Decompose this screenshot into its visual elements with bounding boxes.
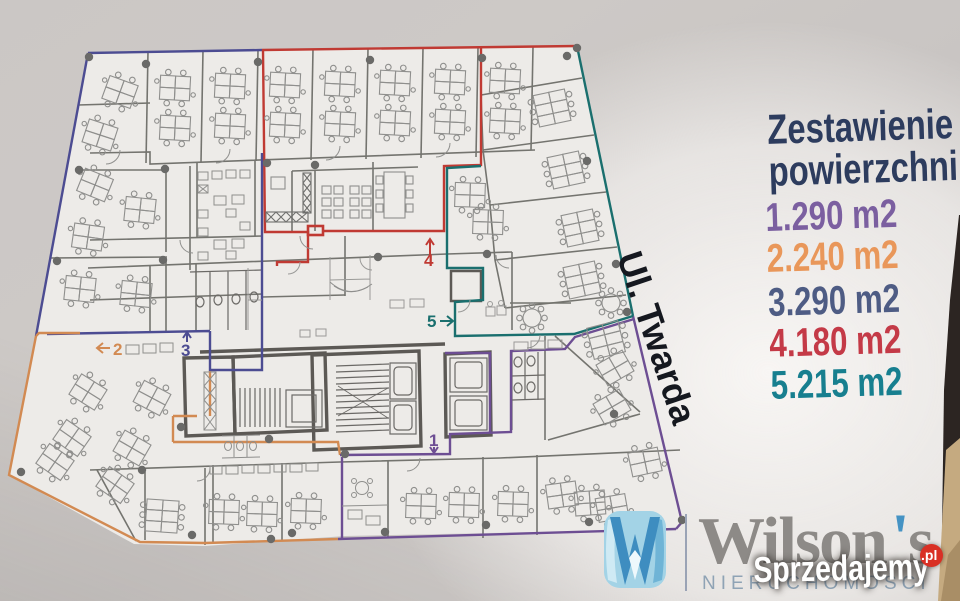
svg-text:2: 2 <box>113 340 122 359</box>
svg-text:5: 5 <box>427 312 436 331</box>
svg-text:3: 3 <box>181 341 190 360</box>
